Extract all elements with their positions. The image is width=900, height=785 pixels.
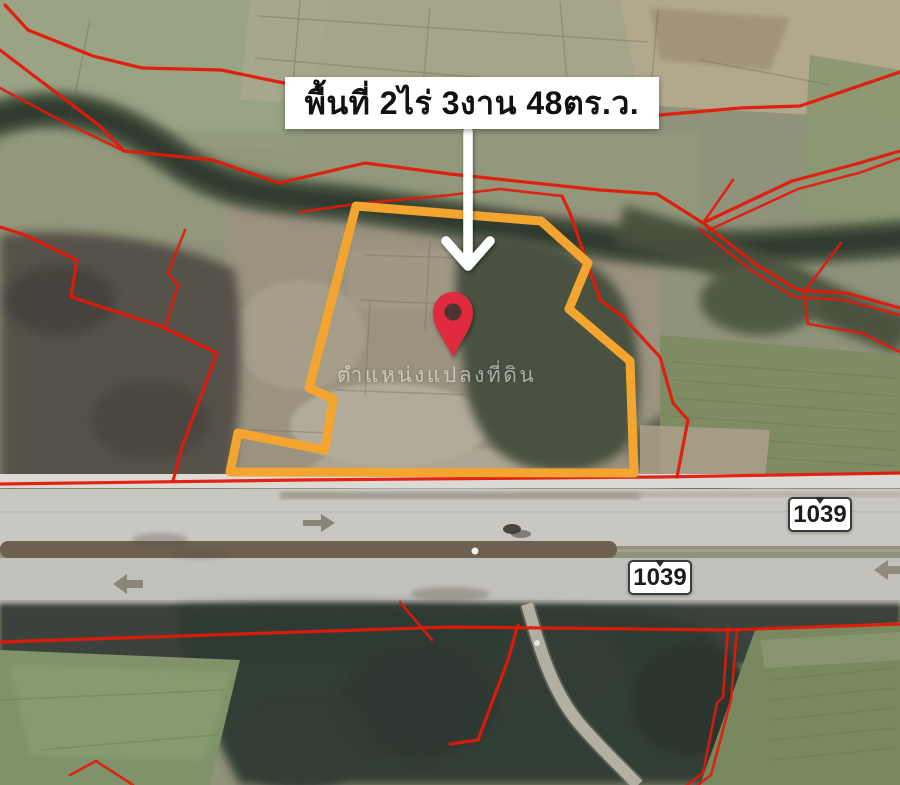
route-shield-1039-lower: 1039 xyxy=(628,560,692,595)
area-label-text: พื้นที่ 2ไร่ 3งาน 48ตร.ว. xyxy=(305,78,639,129)
route-number: 1039 xyxy=(633,564,686,592)
route-shield-notch-icon xyxy=(815,497,825,504)
satellite-map-canvas: พื้นที่ 2ไร่ 3งาน 48ตร.ว. ตำแหน่งแปลงที่… xyxy=(0,0,900,785)
vehicle xyxy=(472,548,479,555)
route-shield-1039-upper: 1039 xyxy=(788,497,852,532)
terrain-south xyxy=(0,604,900,785)
area-label: พื้นที่ 2ไร่ 3งาน 48ตร.ว. xyxy=(285,77,659,129)
median-strip xyxy=(0,541,617,558)
highway xyxy=(0,474,900,607)
route-number: 1039 xyxy=(793,501,846,529)
route-shield-notch-icon xyxy=(655,560,665,567)
watermark-text: ตำแหน่งแปลงที่ดิน xyxy=(337,359,536,392)
